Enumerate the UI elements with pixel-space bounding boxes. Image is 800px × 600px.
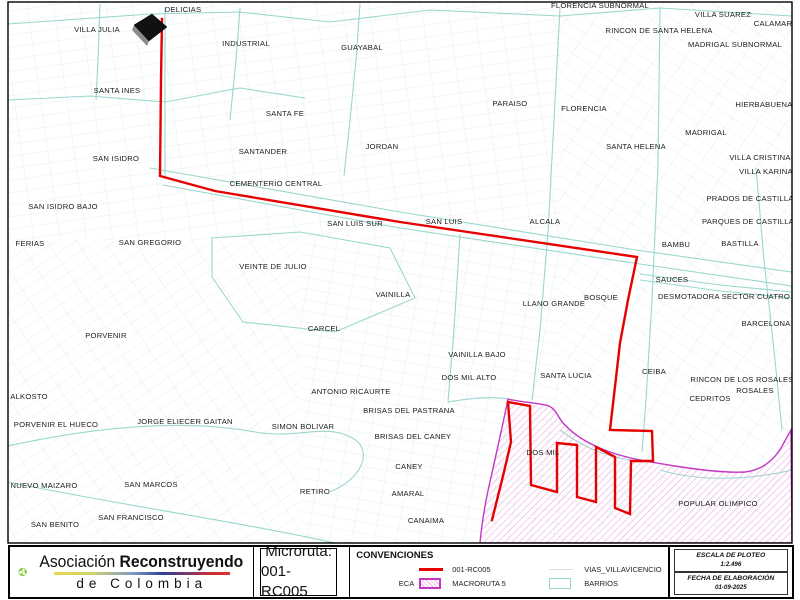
org-name-bold: Reconstruyendo [120,553,244,571]
legend-vias-label: VIAS_VILLAVICENCIO [584,565,661,574]
map-label-simon-bolivar: SIMON BOLIVAR [272,422,335,431]
map-label-santa-lucia: SANTA LUCIA [540,371,592,380]
fecha-value: 01-09-2025 [715,584,747,592]
map-label-san-francisco: SAN FRANCISCO [98,513,164,522]
map-label-vainilla-bajo: VAINILLA BAJO [448,350,506,359]
map-label-ceiba: CEIBA [642,367,667,376]
map-label-nuevo-maizaro: NUEVO MAIZARO [11,481,78,490]
map-label-caney: CANEY [395,462,422,471]
org-logo-panel: Asociación Reconstruyendo de Colombia [10,547,254,597]
title-bar: Asociación Reconstruyendo de Colombia Mi… [8,545,794,599]
legend-vias-line-swatch [549,569,573,570]
map-label-paraiso: PARAISO [493,99,528,108]
map-label-santander: SANTANDER [239,147,288,156]
map-label-prados-de-castilla: PRADOS DE CASTILLA [706,194,794,203]
plot-info-panel: ESCALA DE PLOTEO 1:2.496 FECHA DE ELABOR… [669,547,792,597]
map-sheet: DELICIASVILLA JULIAINDUSTRIALGUAYABALFLO… [0,0,800,600]
map-label-guayabal: GUAYABAL [341,43,383,52]
map-label-carcel: CARCEL [308,324,340,333]
map-label-hierbabuena: HIERBABUENA [735,100,793,109]
map-label-villa-cristina: VILLA CRISTINA [729,153,791,162]
map-label-san-luis: SAN LUIS [426,217,463,226]
map-label-cedritos: CEDRITOS [689,394,730,403]
legend-barrios-swatch [549,578,571,589]
legend-macroruta-label: MACRORUTA 5 [452,579,544,588]
map-label-bambu: BAMBU [662,240,690,249]
microruta-panel: Microruta: 001-RC005 [260,548,337,596]
map-label-jorge-eliecer-gaitan: JORGE ELIECER GAITAN [137,417,233,426]
escala-title: ESCALA DE PLOTEO [696,552,765,561]
map-label-bastilla: BASTILLA [721,239,759,248]
legend-barrios-label: BARRIOS [584,579,661,588]
map-label-desmotadora-sector-cuatro: DESMOTADORA SECTOR CUATRO [658,292,790,301]
map-label-sauces: SAUCES [656,275,689,284]
map-label-parques-de-castilla: PARQUES DE CASTILLA [702,217,795,226]
map-label-jordan: JORDAN [366,142,399,151]
map-label-rincon-de-los-rosales: RINCON DE LOS ROSALES [690,375,793,384]
legend-title: CONVENCIONES [356,550,661,561]
map-label-san-marcos: SAN MARCOS [124,480,178,489]
escala-value: 1:2.496 [720,561,741,569]
microruta-value: 001-RC005 [261,562,336,600]
map-label-bosque: BOSQUE [584,293,618,302]
map-label-villa-julia: VILLA JULIA [74,25,120,34]
map-label-veinte-de-julio: VEINTE DE JULIO [239,262,306,271]
map-canvas: DELICIASVILLA JULIAINDUSTRIALGUAYABALFLO… [0,0,800,600]
org-name: Asociación Reconstruyendo [40,554,244,571]
map-label-brisas-del-caney: BRISAS DEL CANEY [375,432,452,441]
map-label-dos-mil: DOS MIL [527,448,560,457]
map-label-llano-grande: LLANO GRANDE [523,299,586,308]
org-logo-icon [18,550,27,594]
map-label-delicias: DELICIAS [165,5,202,14]
map-label-dos-mil-alto: DOS MIL ALTO [442,373,497,382]
map-label-san-luis-sur: SAN LUIS SUR [327,219,383,228]
map-label-santa-fe: SANTA FE [266,109,304,118]
legend-route-line-swatch [419,568,443,571]
flag-gradient-bar [54,572,230,575]
map-label-san-isidro: SAN ISIDRO [93,154,139,163]
map-label-villa-karina: VILLA KARINA [739,167,793,176]
map-label-barcelona: BARCELONA [741,319,791,328]
map-label-florencia: FLORENCIA [561,104,607,113]
map-label-vainilla: VAINILLA [376,290,411,299]
map-label-antonio-ricaurte: ANTONIO RICAURTE [311,387,390,396]
fecha-title: FECHA DE ELABORACIÓN [687,575,774,584]
map-label-industrial: INDUSTRIAL [222,39,270,48]
map-label-amaral: AMARAL [392,489,425,498]
map-label-san-benito: SAN BENITO [31,520,79,529]
map-label-porvenir: PORVENIR [85,331,127,340]
map-label-san-isidro-bajo: SAN ISIDRO BAJO [28,202,98,211]
map-label-san-gregorio: SAN GREGORIO [119,238,182,247]
map-label-popular-olimpico: POPULAR OLIMPICO [678,499,758,508]
map-label-madrigal-subnormal: MADRIGAL SUBNORMAL [688,40,782,49]
map-label-brisas-del-pastrana: BRISAS DEL PASTRANA [363,406,455,415]
map-label-cementerio-central: CEMENTERIO CENTRAL [230,179,323,188]
fecha-box: FECHA DE ELABORACIÓN 01-09-2025 [674,572,788,595]
map-label-calamar: CALAMAR [754,19,793,28]
microruta-label: Microruta: [265,542,332,562]
map-label-santa-ines: SANTA INES [94,86,141,95]
map-label-madrigal: MADRIGAL [685,128,727,137]
escala-box: ESCALA DE PLOTEO 1:2.496 [674,549,788,572]
map-label-alkosto: ALKOSTO [10,392,47,401]
map-label-canaima: CANAIMA [408,516,445,525]
map-label-rincon-de-santa-helena: RINCON DE SANTA HELENA [605,26,713,35]
map-label-retiro: RETIRO [300,487,330,496]
map-label-ferias: FERIAS [16,239,45,248]
map-label-villa-suarez: VILLA SUAREZ [695,10,751,19]
map-label-porvenir-el-hueco: PORVENIR EL HUECO [14,420,98,429]
org-name-regular: Asociación [40,553,116,571]
map-label-rosales: ROSALES [736,386,774,395]
map-label-santa-helena: SANTA HELENA [606,142,667,151]
legend-route-label: 001-RC005 [452,565,544,574]
map-label-alcala: ALCALA [530,217,561,226]
org-name-country: de Colombia [76,577,207,591]
legend-macroruta-swatch [419,578,441,589]
legend-eca-label: ECA [384,579,414,588]
legend-panel: CONVENCIONES 001-RC005 VIAS_VILLAVICENCI… [349,547,668,597]
